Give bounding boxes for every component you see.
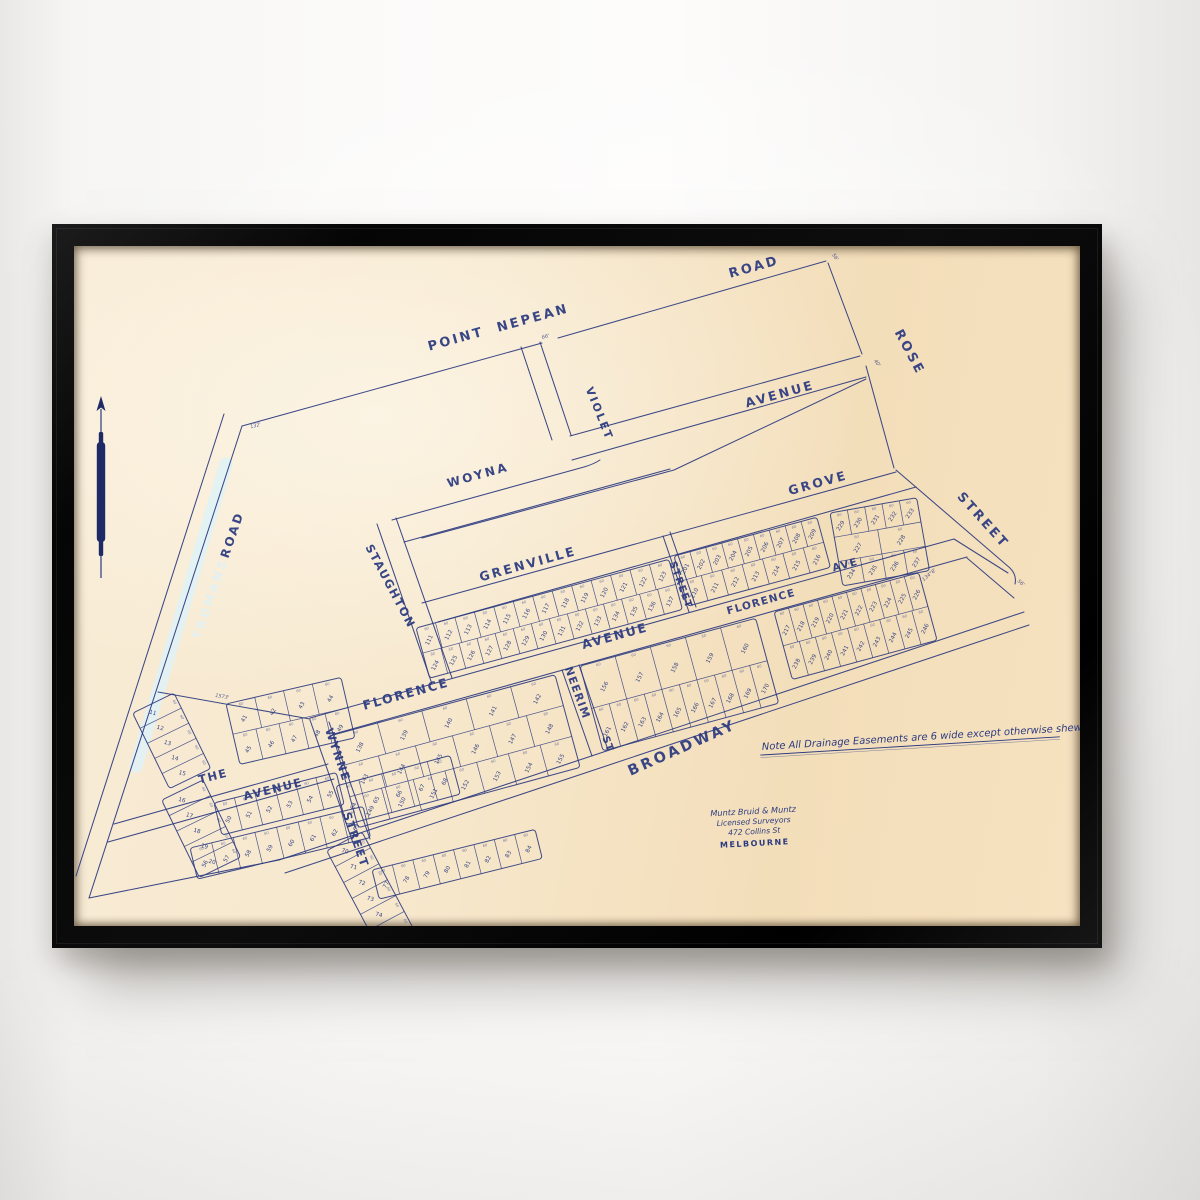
lot-divider [255, 697, 262, 727]
lot-number: 48 [313, 729, 322, 739]
lot-width-dim: 60 [791, 551, 797, 556]
lot-divider [572, 586, 579, 611]
lot-number: 124 [431, 659, 441, 672]
lot-number: 128 [503, 640, 513, 653]
lot-width-dim: 60 [779, 611, 785, 616]
lot-width-dim: 60 [304, 781, 310, 786]
lot-divider [899, 501, 903, 525]
lot-number: 137 [666, 595, 676, 608]
lot-divider [890, 581, 899, 615]
lot-width-dim: 60 [616, 702, 622, 707]
lot-divider [474, 845, 481, 874]
lot-width-dim: 60 [469, 731, 475, 736]
lot-block: 16601760186019602060 [162, 780, 241, 877]
lot-block: 77607860796080608160826083608460 [372, 829, 542, 899]
lot-divider [788, 608, 797, 642]
lot-width-dim: 60 [424, 626, 430, 631]
lot-width-dim: 60 [543, 711, 549, 716]
lot-width-dim: 60 [448, 646, 454, 651]
lot-width-dim: 60 [794, 607, 800, 612]
lot-number: 206 [760, 541, 770, 554]
lot-width-dim: 60 [838, 631, 844, 636]
lot-width-dim: 60 [462, 848, 468, 853]
lot-width-dim: 60 [736, 624, 742, 629]
street-line [89, 426, 242, 898]
lot-divider [832, 596, 841, 630]
lot-divider [452, 736, 460, 767]
lot-number: 142 [533, 693, 543, 705]
lot-width-dim: 60 [335, 711, 341, 716]
lot-number: 80 [444, 865, 453, 874]
north-arrow-icon [97, 396, 106, 578]
subdivision-map: 1116011260113601146011560116601176011860… [74, 246, 1080, 926]
lot-divider [283, 691, 290, 721]
lot-number: 229 [836, 520, 847, 533]
lot-width-dim: 60 [194, 744, 200, 751]
lot-number: 125 [449, 654, 459, 667]
lot-divider [474, 612, 481, 637]
lot-width-dim: 60 [910, 575, 916, 580]
lot-number: 134 [611, 610, 621, 623]
dimension-tick: 40' [872, 359, 881, 369]
lot-divider [234, 798, 242, 830]
lot-number: 50 [225, 815, 234, 824]
lot-width-dim: 60 [414, 765, 420, 770]
lot-divider [721, 628, 733, 670]
lot-divider [320, 817, 327, 848]
drainage-note: Note All Drainage Easements are 6 wide e… [760, 722, 1080, 758]
lot-number: 155 [556, 753, 566, 766]
lot-divider [685, 637, 697, 679]
lot-number: 126 [467, 649, 477, 662]
lot-divider [513, 629, 520, 654]
street-label-staughton: STAUGHTON [363, 542, 419, 631]
lot-divider [531, 624, 538, 649]
lot-width-dim: 60 [325, 682, 331, 687]
lot-width-dim: 60 [728, 542, 734, 547]
lot-number: 41 [240, 714, 249, 724]
lot-number: 240 [824, 649, 834, 662]
lot-width-dim: 60 [665, 588, 671, 593]
lot-width-dim: 60 [599, 579, 605, 584]
lot-width-dim: 60 [870, 622, 876, 627]
lot-divider [549, 619, 556, 644]
lot-divider [785, 526, 792, 551]
lot-number: 52 [266, 805, 275, 814]
lot-number: 44 [327, 694, 336, 704]
lot-number: 140 [444, 717, 454, 730]
lot-divider [737, 539, 744, 564]
lot-number: 65 [373, 795, 382, 804]
lot-number: 228 [896, 534, 907, 547]
lot-divider [803, 548, 810, 573]
lot-width-dim: 60 [657, 563, 663, 568]
lot-divider [533, 596, 540, 621]
lot-number: 113 [464, 623, 474, 636]
lot-number: 43 [298, 701, 307, 711]
lot-divider [847, 510, 851, 534]
lot-width-dim: 60 [852, 591, 858, 596]
lot-width-dim: 60 [521, 600, 527, 605]
lot-width-dim: 60 [201, 760, 207, 767]
lot-number: 18 [193, 828, 202, 836]
lot-number: 163 [638, 716, 648, 729]
lot-width-dim: 60 [441, 853, 447, 858]
lot-width-dim: 60 [895, 579, 901, 584]
lot-width-dim: 60 [854, 509, 860, 514]
lot-number: 122 [639, 576, 649, 588]
lot-number: 72 [358, 880, 366, 888]
lot-divider [912, 611, 921, 645]
lot-number: 146 [471, 743, 481, 756]
lot-number: 225 [898, 593, 908, 606]
lot-divider [783, 553, 790, 578]
lot-divider [732, 670, 744, 712]
lot-width-dim: 60 [686, 683, 692, 688]
lot-divider [312, 684, 319, 714]
lot-width-dim: 60 [710, 574, 716, 579]
lot-number: 224 [883, 596, 893, 609]
lot-number: 165 [673, 706, 683, 719]
lot-number: 239 [808, 653, 818, 666]
lot-divider [762, 559, 769, 584]
lot-divider [466, 699, 474, 730]
lot-number: 121 [619, 581, 629, 594]
lot-number: 114 [483, 618, 493, 631]
lot-number: 218 [796, 620, 806, 633]
lot-width-dim: 60 [789, 644, 795, 649]
lot-divider [298, 822, 305, 853]
lot-width-dim: 60 [806, 640, 812, 645]
street-label-avenue: AVENUE [580, 619, 650, 652]
street-label-nepean: NEPEAN [495, 301, 570, 335]
lot-width-dim: 60 [466, 642, 472, 647]
lot-width-dim: 60 [459, 767, 465, 772]
lot-number: 131 [557, 625, 567, 638]
lot-divider [477, 762, 485, 793]
lot-width-dim: 60 [421, 858, 427, 863]
lot-number: 232 [888, 511, 899, 523]
lot-number: 243 [872, 636, 882, 649]
lot-number: 78 [403, 875, 412, 884]
lot-number: 242 [856, 640, 866, 652]
lot-width-dim: 60 [172, 699, 178, 706]
lot-divider [459, 643, 466, 668]
lot-width-dim: 60 [401, 863, 407, 868]
lot-divider [861, 588, 870, 622]
lot-divider [801, 522, 808, 547]
lot-width-dim: 60 [854, 535, 860, 540]
lot-number: 139 [400, 729, 410, 742]
lot-number: 205 [744, 545, 754, 558]
lot-width-dim: 60 [286, 825, 292, 830]
lot-divider [508, 754, 516, 785]
lot-divider [603, 604, 610, 629]
lot-divider [640, 594, 647, 619]
lot-divider [722, 570, 729, 595]
lot-number: 148 [545, 723, 555, 736]
lot-divider [591, 580, 598, 605]
lot-width-dim: 60 [520, 627, 526, 632]
lot-width-dim: 60 [368, 778, 374, 783]
lot-number: 215 [792, 559, 802, 572]
street-line [828, 263, 862, 354]
lot-width-dim: 60 [430, 651, 436, 656]
lot-width-dim: 60 [463, 616, 469, 621]
lot-divider [658, 589, 665, 614]
lot-number: 59 [266, 844, 275, 854]
lot-number: 227 [853, 542, 864, 555]
lot-number: 214 [772, 565, 782, 578]
lot-width-dim: 60 [307, 820, 313, 825]
street-label-street: STREET [954, 490, 1012, 552]
lot-divider [302, 718, 309, 748]
lot-width-dim: 60 [634, 697, 640, 702]
lot-divider [494, 607, 501, 632]
lot-divider [679, 685, 691, 727]
lot-width-dim: 60 [808, 603, 814, 608]
dimension-tick: 66' [541, 333, 550, 341]
lot-number: 83 [505, 850, 514, 859]
lot-number: 61 [309, 833, 318, 843]
lot-number: 60 [288, 838, 297, 848]
lot-divider [714, 675, 726, 717]
street-label-florence: FLORENCE [725, 587, 797, 618]
lot-width-dim: 60 [289, 722, 295, 727]
lot-number: 202 [697, 558, 707, 570]
lot-number: 211 [710, 581, 720, 594]
lot-number: 158 [670, 661, 680, 674]
lot-number: 81 [464, 860, 473, 869]
lot-divider [377, 723, 385, 754]
lot-number: 231 [871, 513, 882, 526]
lot-width-dim: 60 [242, 836, 248, 841]
lot-row-divider [834, 522, 921, 537]
lot-number: 15 [178, 770, 187, 778]
lot-divider [495, 633, 502, 658]
lot-divider [882, 504, 886, 528]
lot-width-dim: 60 [912, 549, 918, 554]
lot-width-dim: 60 [651, 693, 657, 698]
lot-number: 115 [503, 613, 513, 626]
lot-number: 204 [729, 549, 739, 562]
lot-width-dim: 60 [442, 706, 448, 711]
lot-number: 117 [541, 602, 551, 615]
lot-number: 222 [854, 605, 864, 617]
lot-width-dim: 60 [822, 636, 828, 641]
street-label-road: ROAD [727, 254, 781, 282]
lot-number: 84 [525, 845, 534, 854]
lot-block: 2296023060231602326023360227602286023460… [830, 498, 930, 586]
lot-number: 129 [521, 635, 531, 648]
lot-divider [621, 599, 628, 624]
lot-divider [494, 840, 501, 869]
lot-divider [489, 726, 497, 757]
lot-number: 170 [761, 682, 771, 695]
lot-divider [477, 638, 484, 663]
lot-divider [865, 507, 869, 531]
lot-divider [701, 576, 708, 601]
lot-width-dim: 60 [871, 506, 877, 511]
lot-width-dim: 60 [704, 678, 710, 683]
lot-number: 135 [630, 605, 640, 618]
lot-width-dim: 60 [487, 694, 493, 699]
lot-number: 237 [912, 556, 923, 569]
lot-number: 62 [331, 828, 340, 837]
lot-width-dim: 60 [531, 681, 537, 686]
lot-width-dim: 60 [432, 742, 438, 747]
drainage-note-text: Note All Drainage Easements are 6 wide e… [762, 722, 1080, 753]
lot-divider [256, 729, 263, 759]
surveyor-city: MELBOURNE [720, 837, 790, 850]
lot-width-dim: 60 [402, 918, 408, 925]
lot-divider [864, 624, 873, 658]
lot-width-dim: 60 [506, 721, 512, 726]
lot-divider [526, 716, 534, 747]
lot-width-dim: 60 [222, 801, 228, 806]
lot-width-dim: 60 [701, 633, 707, 638]
lot-divider [378, 756, 386, 787]
lot-width-dim: 60 [837, 595, 843, 600]
lot-divider [415, 746, 423, 777]
lot-number: 203 [713, 554, 723, 567]
lot-number: 111 [425, 634, 435, 647]
lot-width-dim: 60 [638, 568, 644, 573]
lot-width-dim: 60 [596, 662, 602, 667]
lot-divider [644, 694, 656, 736]
lot-number: 157 [635, 671, 645, 684]
street-line [89, 860, 279, 898]
street-line [540, 342, 571, 435]
lot-width-dim: 60 [267, 695, 273, 700]
lot-number: 244 [888, 631, 898, 644]
lot-width-dim: 60 [482, 610, 488, 615]
lot-number: 164 [656, 711, 666, 724]
lot-number: 235 [868, 564, 879, 577]
lot-width-dim: 60 [396, 785, 402, 790]
lot-width-dim: 60 [854, 627, 860, 632]
lot-number: 221 [840, 608, 850, 621]
lot-width-dim: 60 [394, 902, 400, 909]
lot-number: 74 [375, 912, 384, 920]
lot-number: 246 [921, 623, 931, 636]
lot-divider [817, 600, 826, 634]
lot-number: 156 [600, 681, 610, 694]
lot-width-dim: 60 [358, 762, 364, 767]
lot-width-dim: 60 [771, 557, 777, 562]
lot-divider [567, 614, 574, 639]
lot-divider [650, 647, 662, 689]
surveyor-address: 472 Collins St [728, 826, 782, 838]
lot-width-dim: 60 [523, 833, 529, 838]
lot-divider [413, 860, 420, 889]
street-line [967, 558, 1014, 598]
lot-number: 241 [840, 644, 850, 657]
lot-divider [585, 609, 592, 634]
lot-number: 123 [658, 571, 668, 584]
lot-number: 12 [156, 725, 165, 733]
lot-row-divider [341, 706, 563, 766]
lot-block: 2016020260203602046020560206602076020860… [674, 517, 830, 606]
lot-divider [511, 687, 519, 718]
lot-number: 217 [782, 624, 792, 637]
lot-number: 45 [245, 745, 254, 755]
lot-divider [860, 558, 864, 582]
lot-width-dim: 60 [631, 652, 637, 657]
lot-width-dim: 60 [502, 632, 508, 637]
lot-width-dim: 60 [208, 802, 214, 809]
lot-number: 127 [485, 644, 495, 657]
lot-divider [610, 575, 617, 600]
lot-width-dim: 60 [541, 594, 547, 599]
lot-divider [615, 656, 627, 698]
lot-number: 53 [286, 800, 295, 809]
lot-divider [848, 628, 857, 662]
street-line [242, 343, 542, 426]
lot-width-dim: 60 [730, 568, 736, 573]
lot-width-dim: 60 [575, 612, 581, 617]
lot-divider [904, 577, 913, 611]
lot-width-dim: 60 [329, 815, 335, 820]
lot-width-dim: 60 [906, 500, 912, 505]
lot-width-dim: 60 [482, 843, 488, 848]
lot-divider [831, 633, 840, 667]
lot-divider [630, 570, 637, 595]
dimension-tick: 134°8' [921, 568, 938, 583]
lot-number: 169 [743, 687, 753, 700]
lot-width-dim: 60 [618, 573, 624, 578]
dimension-tick: 56' [1016, 578, 1026, 588]
lot-width-dim: 60 [179, 714, 185, 721]
street-line [438, 487, 916, 622]
lot-divider [369, 911, 404, 926]
street-label-st: ST [599, 735, 615, 754]
lot-width-dim: 60 [491, 759, 497, 764]
street-label-the: THE [197, 766, 229, 787]
lot-divider [803, 604, 812, 638]
lot-width-dim: 60 [889, 503, 895, 508]
lot-width-dim: 60 [680, 555, 686, 560]
lot-number: 42 [269, 708, 278, 717]
lot-width-dim: 60 [599, 707, 605, 712]
lot-width-dim: 60 [647, 593, 653, 598]
lot-width-dim: 60 [757, 664, 763, 669]
lot-divider [706, 547, 713, 572]
lot-number: 51 [245, 810, 254, 819]
lot-divider [454, 850, 461, 879]
lot-width-dim: 60 [739, 669, 745, 674]
lot-width-dim: 60 [791, 524, 797, 529]
lot-divider [904, 550, 908, 574]
lot-number: 216 [812, 554, 822, 567]
lot-number: 82 [484, 855, 493, 864]
lot-divider [662, 689, 674, 731]
lot-width-dim: 60 [669, 688, 675, 693]
street-line [422, 379, 866, 538]
street-line [558, 261, 826, 338]
picture-frame: 1116011260113601146011560116601176011860… [52, 224, 1102, 948]
lot-number: 160 [741, 642, 751, 655]
lot-divider [880, 620, 889, 654]
lot-number: 116 [522, 608, 532, 621]
wall-shadow [0, 940, 1200, 1200]
lot-width-dim: 60 [364, 793, 370, 798]
street-line [570, 356, 860, 436]
lot-number: 238 [792, 658, 802, 671]
lot-divider [815, 637, 824, 671]
lot-width-dim: 60 [775, 529, 781, 534]
lot-width-dim: 60 [538, 622, 544, 627]
